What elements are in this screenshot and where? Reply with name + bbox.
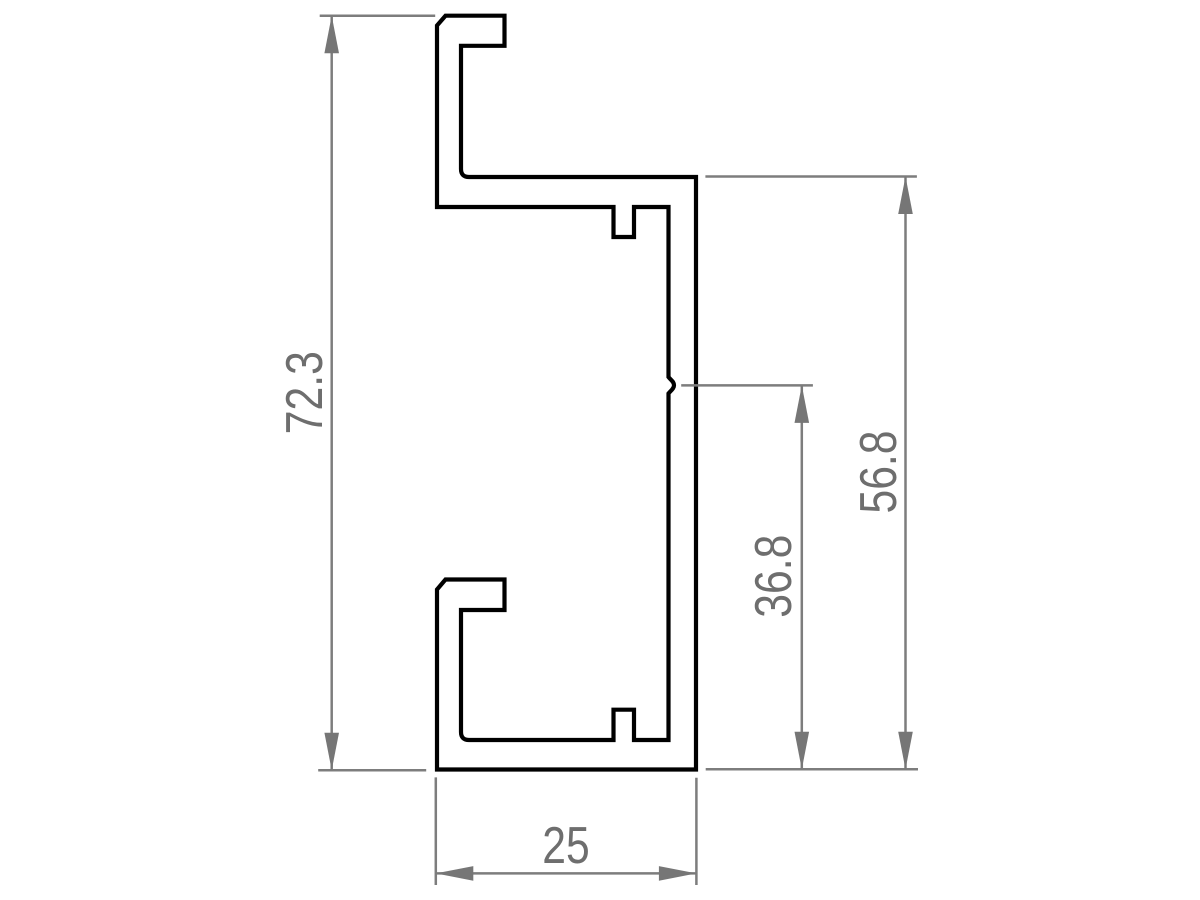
svg-text:25: 25 — [542, 817, 589, 875]
svg-text:72.3: 72.3 — [276, 351, 334, 434]
svg-text:56.8: 56.8 — [850, 431, 908, 514]
svg-text:36.8: 36.8 — [745, 535, 803, 618]
